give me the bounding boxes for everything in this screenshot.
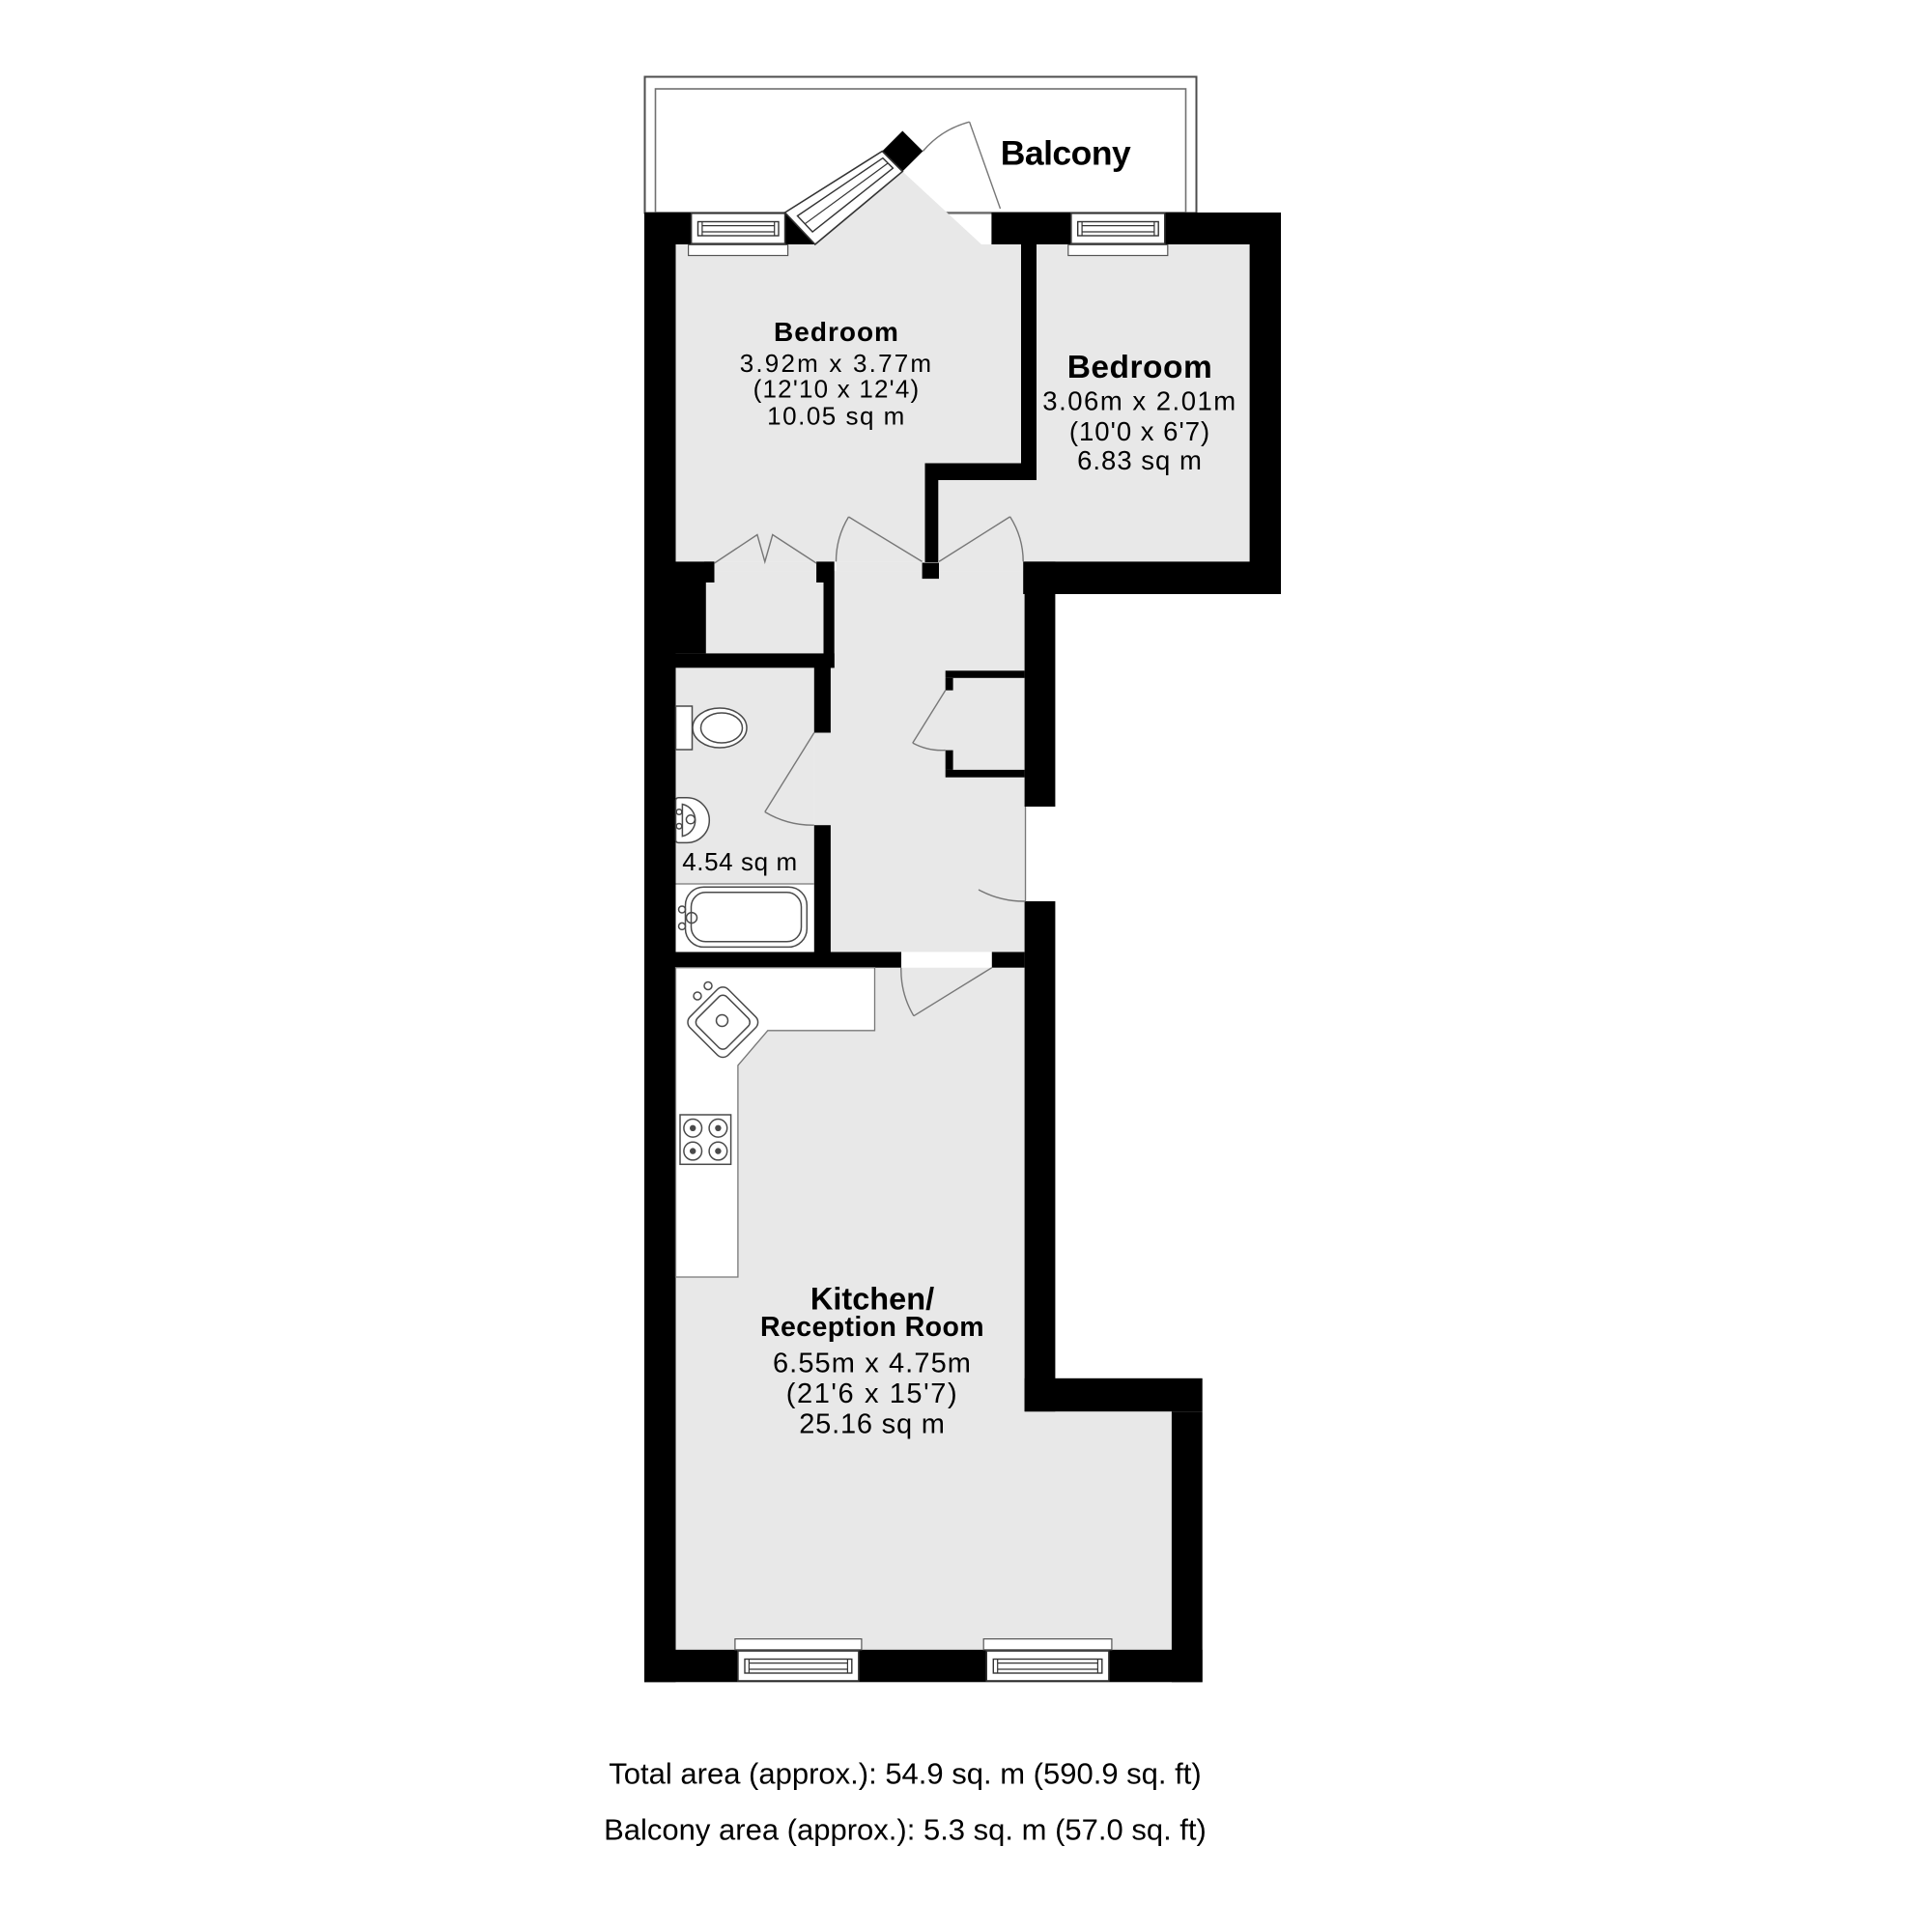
svg-text:Reception Room: Reception Room <box>760 1312 984 1343</box>
svg-text:6.55m x 4.75m: 6.55m x 4.75m <box>773 1349 972 1379</box>
svg-text:(21'6 x 15'7): (21'6 x 15'7) <box>786 1378 959 1409</box>
svg-text:(12'10 x 12'4): (12'10 x 12'4) <box>753 375 921 404</box>
svg-text:Bedroom: Bedroom <box>774 317 899 347</box>
svg-text:Balcony area (approx.): 5.3 sq: Balcony area (approx.): 5.3 sq. m (57.0 … <box>604 1813 1207 1847</box>
svg-text:6.83 sq m: 6.83 sq m <box>1077 445 1203 475</box>
svg-text:Balcony: Balcony <box>1001 134 1131 173</box>
svg-text:3.06m x 2.01m: 3.06m x 2.01m <box>1042 386 1236 416</box>
svg-text:Total area (approx.): 54.9 sq.: Total area (approx.): 54.9 sq. m (590.9 … <box>609 1757 1201 1791</box>
svg-text:25.16 sq m: 25.16 sq m <box>799 1409 945 1440</box>
svg-text:4.54 sq m: 4.54 sq m <box>682 847 798 876</box>
svg-text:(10'0 x 6'7): (10'0 x 6'7) <box>1069 416 1210 446</box>
svg-text:3.92m x 3.77m: 3.92m x 3.77m <box>740 349 934 378</box>
svg-text:10.05 sq m: 10.05 sq m <box>767 402 906 431</box>
svg-text:Bedroom: Bedroom <box>1067 350 1213 385</box>
